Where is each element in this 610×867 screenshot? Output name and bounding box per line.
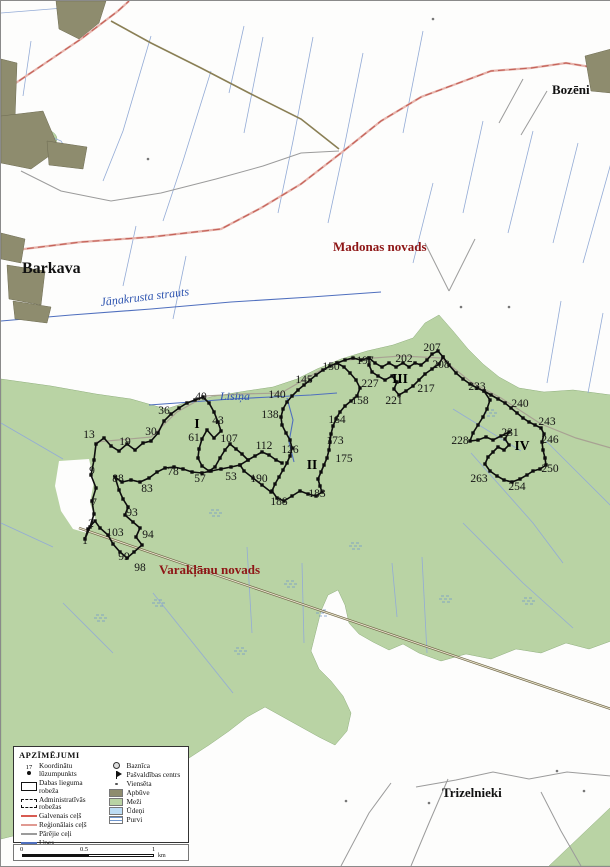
other-roads-icon: [19, 833, 39, 835]
boundary-vertex: [325, 456, 328, 459]
boundary-vertex: [207, 401, 210, 404]
boundary-vertex: [269, 490, 272, 493]
boundary-vertex: [531, 469, 534, 472]
scale-tick-0: 0: [20, 846, 23, 853]
legend-label: Dabas lieguma robeža: [39, 779, 83, 795]
boundary-vertex: [223, 448, 226, 451]
point-number-label: 13: [83, 429, 95, 441]
point-number-label: 145: [295, 374, 313, 386]
boundary-vertex: [525, 473, 528, 476]
legend-item-other-roads: Pārējie ceļi: [19, 830, 106, 838]
boundary-vertex: [190, 470, 193, 473]
legend-item-municipal-center: Pašvaldības centrs: [106, 771, 184, 779]
boundary-vertex: [200, 464, 203, 467]
boundary-vertex: [273, 482, 276, 485]
boundary-vertex: [218, 456, 221, 459]
legend-label: Administratīvās robežas: [39, 796, 86, 812]
boundary-vertex: [380, 365, 383, 368]
boundary-vertex: [147, 476, 150, 479]
boundary-vertex: [284, 431, 287, 434]
legend-item-water: Ūdeņi: [106, 807, 184, 815]
boundary-vertex: [394, 365, 397, 368]
place-label-trizelnieki: Trizelnieki: [442, 785, 502, 800]
municipal-center-icon: [106, 771, 126, 779]
boundary-vertex: [240, 452, 243, 455]
point-number-label: 217: [417, 383, 435, 395]
section-numeral-label: II: [307, 457, 318, 472]
homestead-icon: [106, 783, 126, 785]
boundary-vertex: [327, 448, 330, 451]
homestead-dot: [345, 800, 348, 803]
place-label-boz-ni: Bozēni: [552, 82, 590, 97]
boundary-vertex: [342, 365, 345, 368]
legend-column-left: 17Koordinātu lūzumpunktsDabas lieguma ro…: [19, 762, 106, 848]
boundary-vertex: [205, 428, 208, 431]
boundary-vertex: [413, 361, 416, 364]
boundary-vertex: [425, 358, 428, 361]
boundary-vertex: [121, 497, 124, 500]
boundary-vertex: [290, 494, 293, 497]
place-label-barkava: Barkava: [22, 260, 81, 277]
reserve-boundary-icon: [19, 782, 39, 791]
point-number-label: 202: [395, 353, 413, 365]
legend-label: Reģionālais ceļš: [39, 821, 87, 829]
boundary-vertex: [496, 445, 499, 448]
point-number-label: 190: [250, 473, 268, 485]
boundary-vertex: [502, 448, 505, 451]
boundary-vertex: [117, 449, 120, 452]
admin-boundary-icon: [19, 799, 39, 808]
section-numeral-label: I: [194, 416, 199, 431]
boundary-vertex: [348, 371, 351, 374]
homestead-dot: [583, 790, 586, 793]
boundary-vertex: [267, 453, 270, 456]
boundary-vertex: [491, 438, 494, 441]
homestead-dot: [460, 306, 463, 309]
boundary-vertex: [149, 439, 152, 442]
point-number-label: 263: [470, 473, 488, 485]
church-icon: [106, 762, 126, 769]
boundary-vertex: [484, 435, 487, 438]
boundary-vertex: [423, 372, 426, 375]
scale-bar-white-segment: [88, 854, 154, 857]
boundary-vertex: [279, 415, 282, 418]
point-number-label: 99: [118, 551, 130, 563]
point-number-label: 246: [541, 434, 559, 446]
boundary-vertex: [111, 542, 114, 545]
point-number-label: 30: [145, 426, 157, 438]
boundary-vertex: [543, 456, 546, 459]
water-icon: [106, 807, 126, 815]
boundary-vertex: [383, 378, 386, 381]
point-number-label: 43: [212, 415, 224, 427]
legend-label: Pārējie ceļi: [39, 830, 72, 838]
legend-item-main-road: Galvenais ceļš: [19, 812, 106, 820]
boundary-vertex: [533, 423, 536, 426]
boundary-vertex: [181, 467, 184, 470]
boundary-vertex: [117, 488, 120, 491]
section-numeral-label: IV: [514, 438, 529, 453]
point-number-label: 94: [142, 529, 154, 541]
point-number-label: 240: [511, 398, 529, 410]
boundary-vertex: [488, 469, 491, 472]
bog-icon: [106, 816, 126, 824]
point-number-label: 228: [451, 435, 469, 447]
point-number-label: 207: [423, 342, 441, 354]
boundary-vertex: [155, 470, 158, 473]
point-number-label: 98: [134, 562, 146, 574]
boundary-vertex: [343, 358, 346, 361]
boundary-vertex: [281, 407, 284, 410]
boundary-vertex: [288, 438, 291, 441]
boundary-vertex: [507, 443, 510, 446]
boundary-vertex: [502, 478, 505, 481]
boundary-vertex: [481, 415, 484, 418]
point-number-label: 254: [508, 481, 526, 493]
boundary-vertex: [109, 444, 112, 447]
boundary-vertex: [486, 455, 489, 458]
boundary-vertex: [229, 465, 232, 468]
legend-item-admin-boundary: Administratīvās robežas: [19, 796, 106, 812]
point-number-label: 188: [270, 496, 288, 508]
point-number-label: 2: [88, 518, 94, 530]
boundary-vertex: [373, 361, 376, 364]
boundary-vertex: [242, 469, 245, 472]
boundary-vertex: [131, 520, 134, 523]
place-label-madonas-novads: Madonas novads: [333, 239, 427, 254]
point-number-label: 53: [225, 471, 237, 483]
boundary-vertex: [219, 467, 222, 470]
boundary-vertex: [461, 377, 464, 380]
boundary-vertex: [94, 486, 97, 489]
boundary-vertex: [392, 387, 395, 390]
boundary-vertex: [527, 420, 530, 423]
boundary-vertex: [296, 388, 299, 391]
point-number-label: 19: [119, 436, 131, 448]
place-label-lisi-a: Lisiņa: [219, 389, 250, 403]
place-label-varak-nu-novads: Varakļānu novads: [159, 562, 260, 578]
boundary-vertex: [212, 436, 215, 439]
boundary-vertex: [319, 470, 322, 473]
boundary-vertex: [503, 401, 506, 404]
boundary-vertex: [197, 447, 200, 450]
boundary-vertex: [343, 404, 346, 407]
coord-point-icon: 17: [19, 765, 39, 776]
boundary-vertex: [196, 456, 199, 459]
boundary-vertex: [411, 384, 414, 387]
boundary-vertex: [515, 411, 518, 414]
legend-item-regional-road: Reģionālais ceļš: [19, 821, 106, 829]
point-number-label: 78: [167, 466, 179, 478]
boundary-vertex: [134, 535, 137, 538]
boundary-vertex: [351, 356, 354, 359]
boundary-vertex: [387, 361, 390, 364]
boundary-vertex: [274, 458, 277, 461]
boundary-vertex: [212, 410, 215, 413]
boundary-vertex: [476, 438, 479, 441]
boundary-vertex: [471, 431, 474, 434]
boundary-vertex: [407, 365, 410, 368]
homestead-dot: [508, 306, 511, 309]
boundary-vertex: [140, 543, 143, 546]
legend-item-homestead: Viensēta: [106, 780, 184, 788]
boundary-vertex: [280, 423, 283, 426]
scale-tick-1: 1: [152, 846, 155, 853]
boundary-vertex: [468, 439, 471, 442]
boundary-vertex: [92, 458, 95, 461]
boundary-vertex: [322, 463, 325, 466]
point-number-label: 126: [281, 444, 299, 456]
map-legend: APZĪMĒJUMI 17Koordinātu lūzumpunktsDabas…: [13, 746, 189, 843]
boundary-vertex: [129, 478, 132, 481]
boundary-vertex: [92, 512, 95, 515]
map-svg: 1279131930364043611071121267857531908883…: [1, 1, 610, 866]
boundary-vertex: [98, 526, 101, 529]
point-number-label: 61: [188, 432, 200, 444]
boundary-vertex: [485, 407, 488, 410]
boundary-vertex: [280, 461, 283, 464]
homestead-dot: [556, 770, 559, 773]
legend-label: Meži: [126, 798, 141, 806]
homestead-dot: [428, 802, 431, 805]
boundary-vertex: [141, 441, 144, 444]
legend-label: Purvi: [126, 816, 142, 824]
point-number-label: 221: [385, 395, 403, 407]
boundary-vertex: [491, 450, 494, 453]
boundary-vertex: [162, 419, 165, 422]
point-number-label: 88: [112, 473, 124, 485]
boundary-vertex: [316, 477, 319, 480]
main-road-icon: [19, 815, 39, 817]
boundary-vertex: [177, 406, 180, 409]
point-number-label: 103: [106, 527, 124, 539]
legend-label: Galvenais ceļš: [39, 812, 81, 820]
boundary-vertex: [213, 465, 216, 468]
legend-label: Apbūve: [126, 789, 149, 797]
boundary-vertex: [495, 474, 498, 477]
legend-item-bog: Purvi: [106, 816, 184, 824]
boundary-vertex: [156, 431, 159, 434]
boundary-vertex: [102, 436, 105, 439]
boundary-vertex: [163, 466, 166, 469]
boundary-vertex: [133, 448, 136, 451]
map-canvas: 1279131930364043611071121267857531908883…: [0, 0, 610, 867]
boundary-vertex: [404, 389, 407, 392]
section-numeral-label: III: [392, 371, 408, 386]
legend-label: Koordinātu lūzumpunkts: [39, 762, 77, 778]
point-number-label: 173: [326, 435, 344, 447]
boundary-vertex: [253, 454, 256, 457]
legend-title: APZĪMĒJUMI: [19, 750, 184, 760]
point-number-label: 150: [322, 361, 340, 373]
boundary-vertex: [417, 378, 420, 381]
point-number-label: 36: [158, 405, 170, 417]
scale-tick-05: 0.5: [80, 846, 88, 853]
builtup-icon: [106, 789, 126, 797]
point-number-label: 112: [256, 440, 273, 452]
boundary-vertex: [354, 378, 357, 381]
legend-label: Baznīca: [126, 762, 150, 770]
legend-item-builtup: Apbūve: [106, 789, 184, 797]
boundary-vertex: [489, 393, 492, 396]
boundary-vertex: [200, 437, 203, 440]
boundary-vertex: [370, 370, 373, 373]
boundary-vertex: [488, 398, 491, 401]
boundary-vertex: [314, 373, 317, 376]
boundary-vertex: [281, 468, 284, 471]
legend-column-right: BaznīcaPašvaldības centrsViensētaApbūveM…: [106, 762, 184, 848]
point-number-label: 227: [361, 378, 379, 390]
boundary-vertex: [290, 394, 293, 397]
boundary-vertex: [169, 412, 172, 415]
point-number-label: 197: [356, 355, 374, 367]
point-number-label: 164: [328, 414, 346, 426]
boundary-vertex: [419, 363, 422, 366]
point-number-label: 183: [308, 488, 326, 500]
builtup-area: [1, 59, 17, 123]
point-number-label: 250: [541, 463, 559, 475]
legend-label: Pašvaldības centrs: [126, 771, 180, 779]
forest-icon: [106, 798, 126, 806]
legend-item-coord-point: 17Koordinātu lūzumpunkts: [19, 762, 106, 778]
homestead-dot: [147, 158, 150, 161]
regional-road-icon: [19, 824, 39, 826]
point-number-label: 158: [351, 395, 369, 407]
legend-item-reserve-boundary: Dabas lieguma robeža: [19, 779, 106, 795]
homestead-dot: [432, 18, 435, 21]
boundary-vertex: [238, 463, 241, 466]
boundary-vertex: [541, 448, 544, 451]
boundary-vertex: [483, 462, 486, 465]
point-number-label: 243: [538, 416, 556, 428]
legend-item-forest: Meži: [106, 798, 184, 806]
point-number-label: 1: [82, 535, 88, 547]
boundary-vertex: [246, 458, 249, 461]
scale-bar-black-segment: [22, 854, 88, 857]
legend-label: Ūdeņi: [126, 807, 144, 815]
boundary-vertex: [496, 397, 499, 400]
legend-item-church: Baznīca: [106, 762, 184, 770]
boundary-vertex: [521, 416, 524, 419]
point-number-label: 57: [194, 473, 206, 485]
point-number-label: 140: [268, 389, 286, 401]
boundary-vertex: [209, 469, 212, 472]
boundary-vertex: [185, 401, 188, 404]
boundary-vertex: [277, 475, 280, 478]
scale-unit: km: [158, 853, 166, 859]
boundary-vertex: [132, 550, 135, 553]
boundary-vertex: [298, 489, 301, 492]
point-number-label: 138: [261, 409, 279, 421]
boundary-vertex: [138, 526, 141, 529]
boundary-vertex: [234, 447, 237, 450]
boundary-vertex: [476, 423, 479, 426]
point-number-label: 175: [335, 453, 353, 465]
point-number-label: 9: [89, 465, 95, 477]
point-number-label: 83: [141, 483, 153, 495]
point-number-label: 208: [432, 359, 450, 371]
boundary-vertex: [285, 400, 288, 403]
point-number-label: 233: [468, 381, 486, 393]
legend-label: Viensēta: [126, 780, 151, 788]
scale-bar: 0 0.5 1 km: [13, 844, 189, 861]
point-number-label: 40: [195, 391, 207, 403]
point-number-label: 7: [91, 497, 97, 509]
boundary-vertex: [285, 461, 288, 464]
point-number-label: 93: [126, 507, 138, 519]
boundary-vertex: [94, 442, 97, 445]
boundary-vertex: [454, 371, 457, 374]
point-number-label: 107: [220, 433, 238, 445]
